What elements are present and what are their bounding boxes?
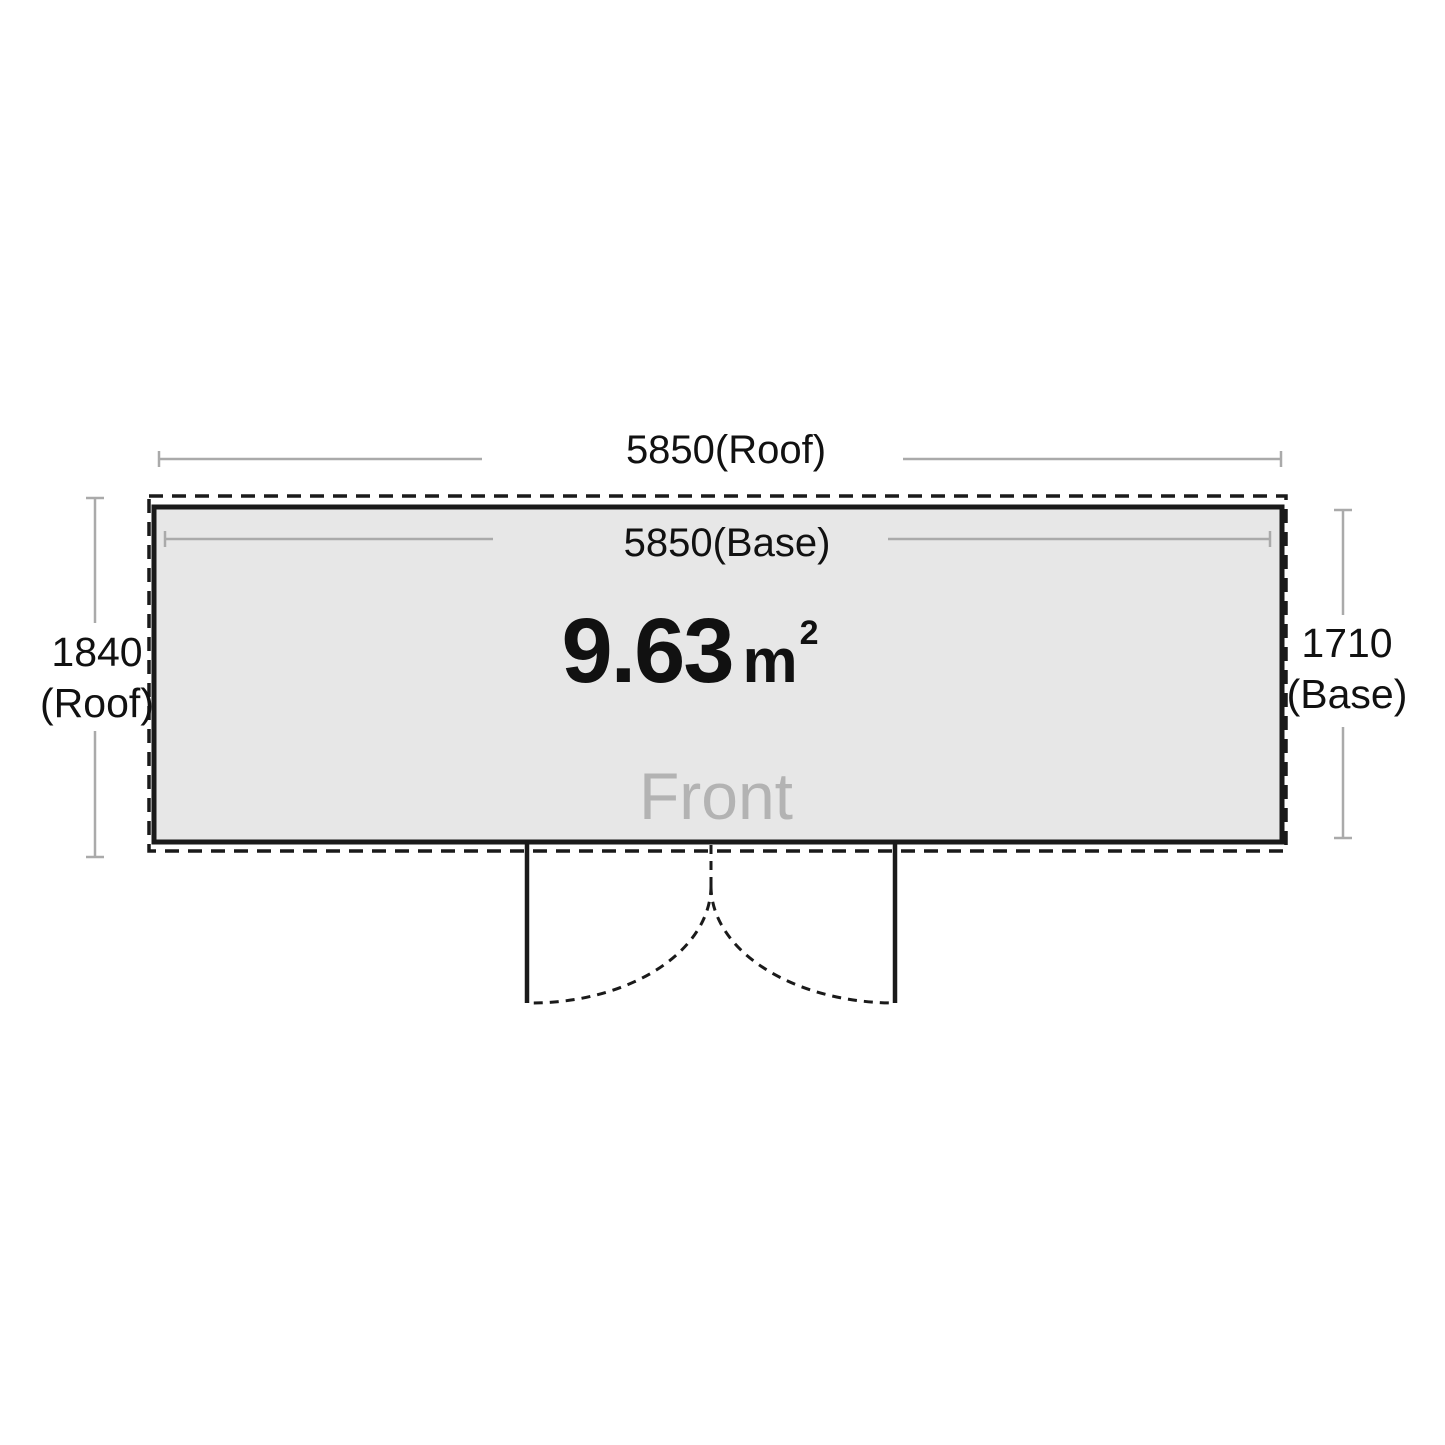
area-exponent: 2 — [800, 616, 819, 650]
area-unit: m — [743, 631, 798, 693]
floorplan-drawing — [0, 0, 1445, 1445]
area-value: 9.63 — [561, 605, 732, 697]
floor-area-label: 9.63 m 2 — [440, 605, 940, 697]
base-depth-dimension-label: 1710 (Base) — [1267, 618, 1427, 721]
base-depth-unit: (Base) — [1267, 669, 1427, 720]
door-swing-arc-left — [531, 886, 711, 1003]
base-width-dimension-label: 5850(Base) — [577, 523, 877, 563]
roof-depth-unit: (Roof) — [17, 678, 177, 729]
front-label: Front — [566, 763, 866, 829]
door-swing-arc-right — [711, 886, 895, 1003]
floorplan-canvas: 5850(Roof) 5850(Base) 1840 (Roof) 1710 (… — [0, 0, 1445, 1445]
roof-width-dimension-label: 5850(Roof) — [576, 430, 876, 470]
base-depth-value: 1710 — [1267, 618, 1427, 669]
roof-depth-value: 1840 — [17, 627, 177, 678]
roof-depth-dimension-label: 1840 (Roof) — [17, 627, 177, 730]
